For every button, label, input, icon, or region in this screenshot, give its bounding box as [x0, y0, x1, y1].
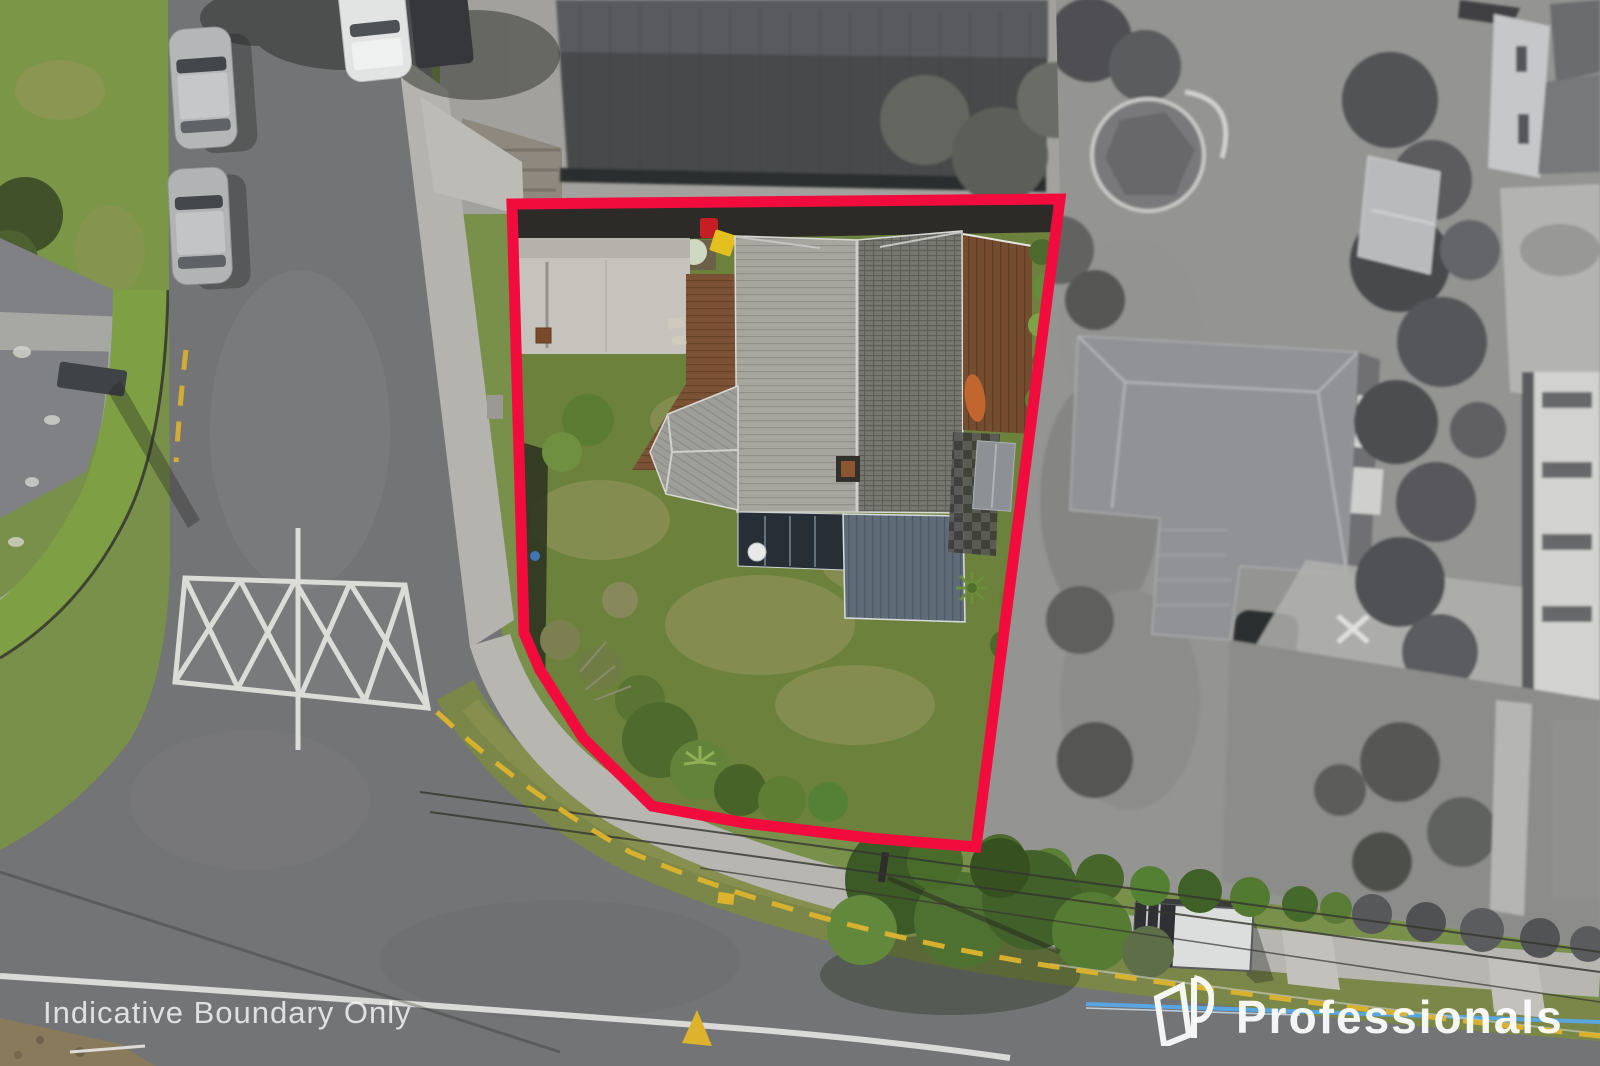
aerial-scene	[0, 0, 1600, 1066]
yucca-plant	[956, 572, 988, 604]
satellite-dish	[748, 543, 766, 561]
boundary-disclaimer-text: Indicative Boundary Only	[43, 995, 412, 1031]
professionals-p-icon	[1152, 972, 1214, 1046]
aerial-property-photo: Indicative Boundary Only Professionals	[0, 0, 1600, 1066]
brand-name-text: Professionals	[1236, 990, 1564, 1044]
brand-logo: Professionals	[1152, 972, 1564, 1046]
